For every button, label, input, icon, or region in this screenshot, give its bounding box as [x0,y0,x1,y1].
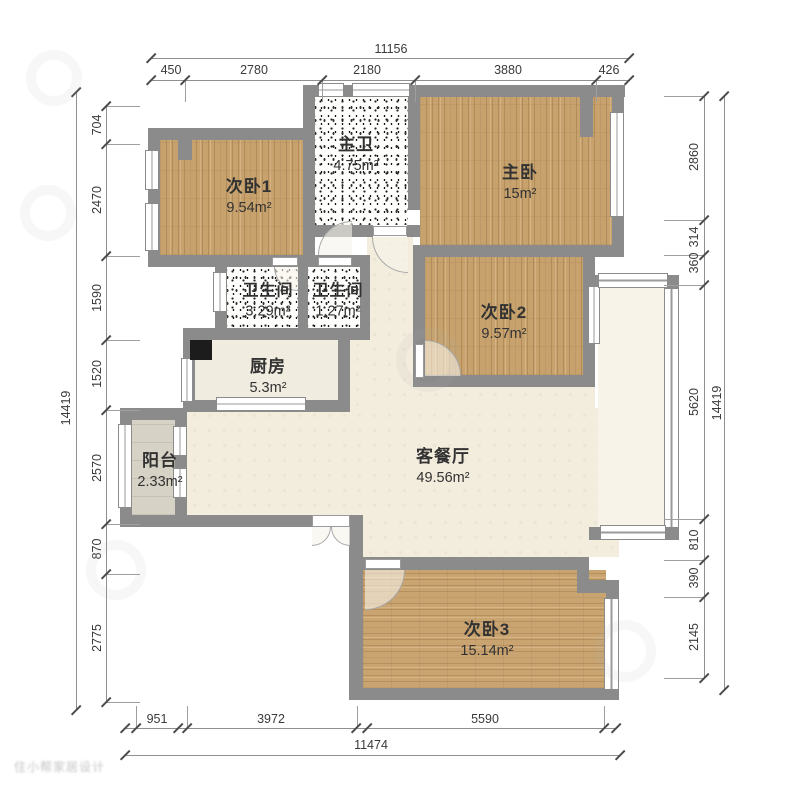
room-name: 阳台 [142,446,178,471]
room-name: 卫生间 [242,277,293,301]
dimension-extension-line [664,597,704,598]
dim-bottom-seg-1: 3972 [257,712,285,726]
door-swing-arc [312,527,331,546]
room-area: 5.3m² [249,380,286,396]
dim-top-seg-3: 3880 [494,63,522,77]
floor-cream [589,540,619,557]
watermark-circle [26,50,82,106]
dim-top-seg-1: 2780 [240,63,268,77]
room-name: 主卧 [502,158,538,183]
room-name: 主卫 [338,130,374,155]
kitchen-flue-block [190,340,212,360]
room-label-kitchen: 厨房 5.3m² [249,352,286,396]
wall [175,515,315,527]
window [145,203,159,251]
room-label-balcony: 阳台 2.33m² [137,446,182,490]
wall [408,97,420,210]
room-name: 客餐厅 [416,442,470,467]
wall [349,688,619,700]
dimension-line [76,92,77,710]
dim-bottom-total: 11474 [354,738,388,752]
room-name: 次卧3 [464,615,510,640]
room-area: 49.56m² [416,470,469,486]
dim-left-seg-6: 2775 [90,624,104,652]
window [610,112,624,217]
dimension-extension-line [664,285,704,286]
dim-right-seg-0: 2860 [687,143,701,171]
wall [148,128,315,140]
door-leaf [318,257,352,266]
dimension-line [125,755,620,756]
floor-plan: 次卧1 9.54m² 主卫 4.75m² 主卧 15m² 次卧2 9.57m² … [0,0,800,800]
dimension-extension-line [106,702,140,703]
dim-left-seg-5: 870 [90,539,104,560]
door-leaf [272,257,298,266]
room-label-bathroom-2: 卫生间 1.27m² [312,277,363,320]
room-name: 次卧2 [481,298,527,323]
watermark-text: 住小帮家居设计 [14,758,105,775]
dimension-extension-line [415,80,416,102]
dimension-line [151,80,629,81]
window [216,397,306,411]
dimension-extension-line [106,340,140,341]
wall [303,85,315,267]
watermark-circle [20,185,76,241]
dim-bottom-seg-2: 5590 [471,712,499,726]
dim-left-seg-2: 1590 [90,284,104,312]
dim-right-seg-2: 360 [687,253,701,274]
dim-left-seg-4: 2570 [90,454,104,482]
door-leaf [365,559,401,569]
wall [349,515,363,700]
floor-cream [413,387,595,408]
window [598,273,668,288]
dim-left-seg-3: 1520 [90,360,104,388]
dimension-extension-line [664,560,704,561]
window [181,358,193,402]
dim-right-seg-6: 2145 [687,623,701,651]
dim-top-seg-4: 426 [599,63,620,77]
dim-right-seg-5: 390 [687,568,701,589]
window [118,424,132,508]
window [604,598,619,690]
room-area: 9.57m² [481,326,526,342]
window [600,525,666,540]
dim-right-seg-4: 810 [687,530,701,551]
room-label-second-bedroom-3: 次卧3 15.14m² [460,615,513,659]
dim-left-seg-0: 704 [90,115,104,136]
dimension-extension-line [106,574,140,575]
room-label-living-dining: 客餐厅 49.56m² [416,442,470,486]
dimension-line [106,105,107,702]
window [352,83,410,97]
dimension-extension-line [664,678,704,679]
door-leaf [312,515,350,527]
door-swing-arc [331,527,350,546]
wall [580,97,593,137]
wall [178,140,192,160]
room-label-bathroom-1: 卫生间 3.29m² [242,277,293,320]
window [664,288,679,528]
floor-cream [187,408,598,515]
wall [298,267,308,328]
dimension-extension-line [322,80,323,102]
dimension-extension-line [106,256,140,257]
room-name: 厨房 [250,352,286,377]
wall [413,375,595,387]
wall [407,225,420,237]
dim-top-seg-0: 450 [161,63,182,77]
dimension-extension-line [664,220,704,221]
room-label-second-bedroom-2: 次卧2 9.57m² [481,298,527,342]
dim-right-seg-1: 314 [687,227,701,248]
dim-right-total: 14419 [710,386,724,421]
dimension-extension-line [106,106,140,107]
floor-cream [350,337,367,408]
dimension-line [151,58,629,59]
dimension-extension-line [185,80,186,102]
window [588,286,600,344]
room-area: 15.14m² [460,643,513,659]
room-area: 3.29m² [245,304,290,320]
dim-left-seg-1: 2470 [90,186,104,214]
room-label-master-bath: 主卫 4.75m² [333,130,378,174]
dimension-extension-line [106,144,140,145]
room-label-second-bedroom-1: 次卧1 9.54m² [226,172,272,216]
dimension-extension-line [106,410,140,411]
dimension-line [724,96,725,690]
floor-wood-h [583,593,606,688]
dim-top-total: 11156 [375,42,408,56]
room-name: 卫生间 [312,277,363,301]
window [213,272,227,312]
room-area: 15m² [503,186,536,202]
dim-left-total: 14419 [59,391,73,426]
floor-cream [363,515,598,557]
dim-bottom-seg-0: 951 [147,712,168,726]
door-leaf [415,344,424,378]
floor-bayf [598,288,666,527]
dimension-extension-line [106,524,140,525]
room-label-master-bedroom: 主卧 15m² [502,158,538,202]
room-name: 次卧1 [226,172,272,197]
room-area: 2.33m² [137,474,182,490]
dimension-line [125,728,616,729]
dimension-extension-line [664,519,704,520]
dimension-extension-line [596,80,597,102]
room-area: 1.27m² [315,304,360,320]
room-area: 4.75m² [333,158,378,174]
door-leaf [373,226,407,236]
dimension-line [704,96,705,678]
dim-right-seg-3: 5620 [687,388,701,416]
window [145,150,159,190]
dimension-extension-line [664,96,704,97]
dim-top-seg-2: 2180 [353,63,381,77]
room-area: 9.54m² [226,200,271,216]
